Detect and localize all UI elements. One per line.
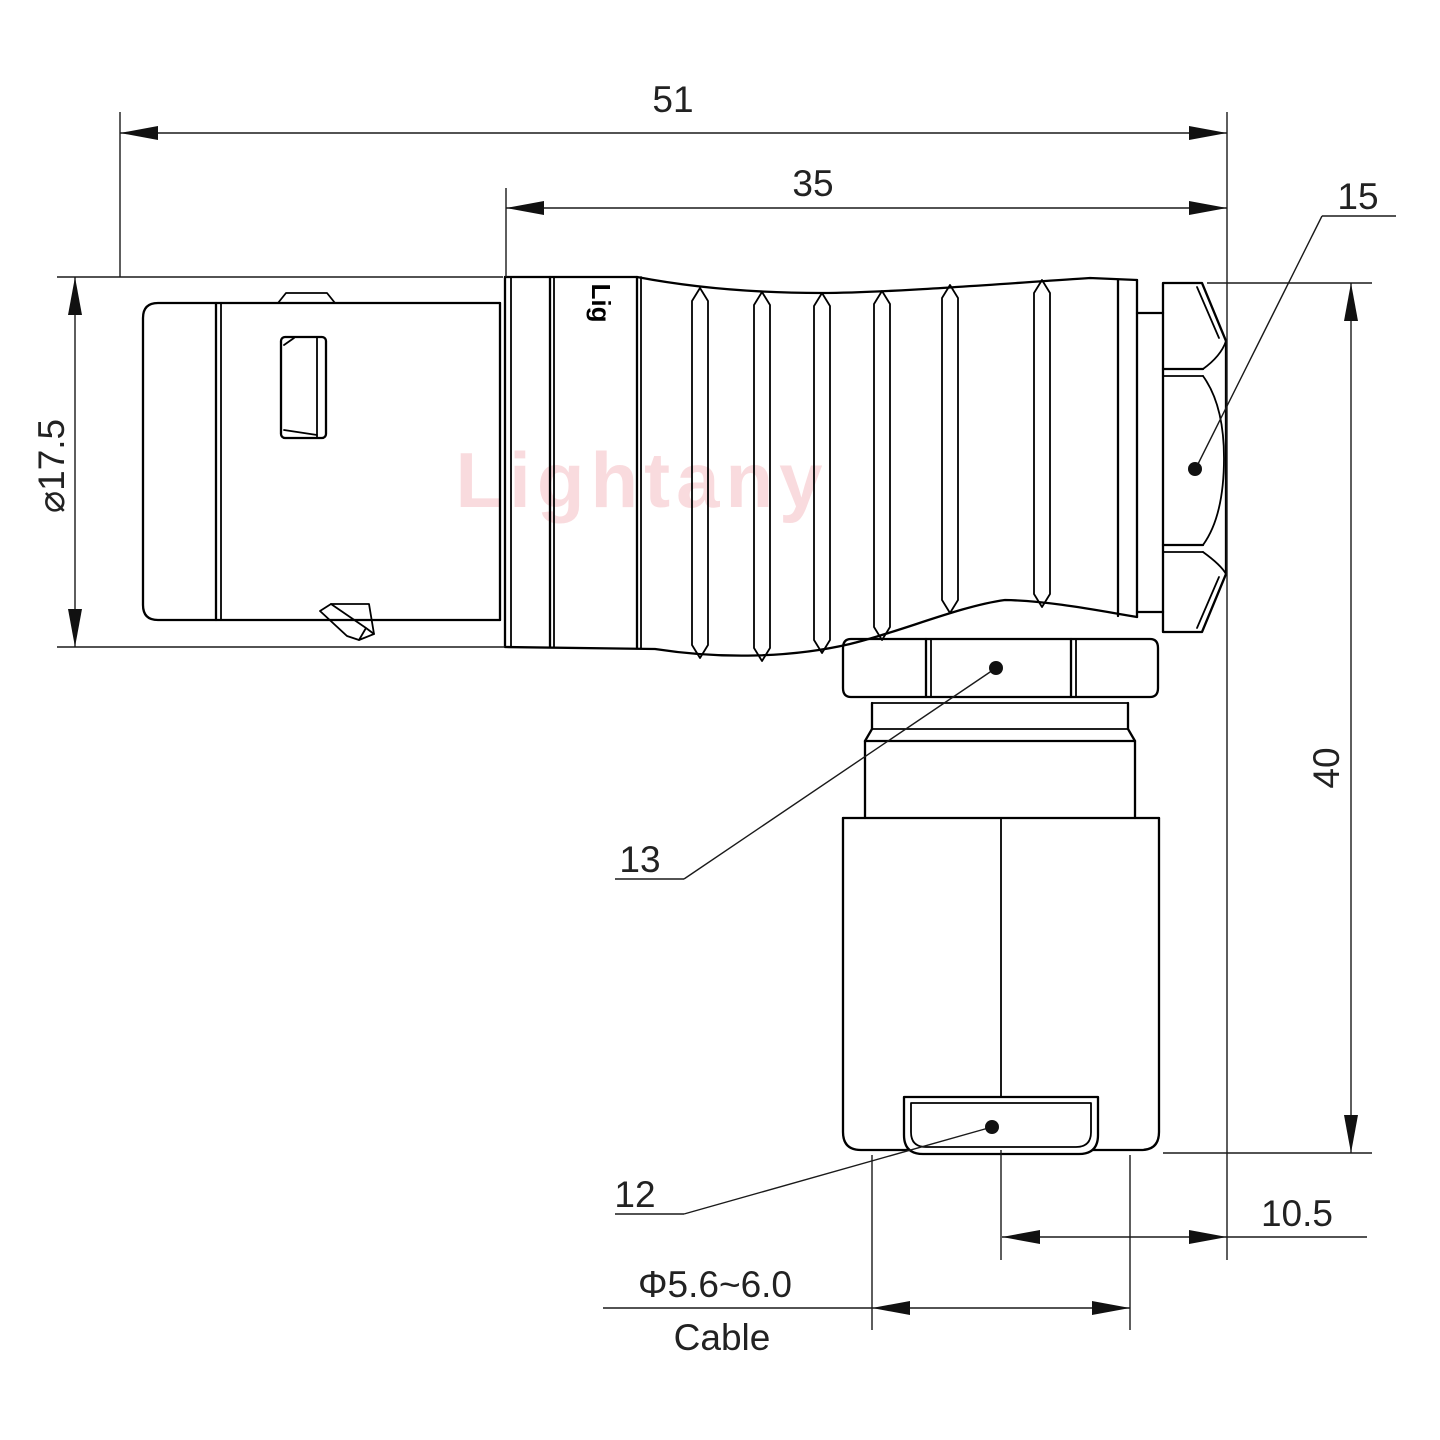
dim-cable-dia-text: Φ5.6~6.0 <box>638 1264 792 1305</box>
latch-window <box>281 337 326 438</box>
hex-nut <box>1137 283 1226 632</box>
dimension-overall-length: 51 <box>120 79 1227 1260</box>
drawing-canvas: Lightany Lig <box>0 0 1440 1440</box>
dim-51-text: 51 <box>652 79 693 120</box>
callout-15-dot <box>1188 462 1202 476</box>
plug-shell <box>143 293 500 640</box>
dim-35-text: 35 <box>792 163 833 204</box>
cable-caption-text: Cable <box>674 1317 771 1358</box>
dimension-offset: 10.5 <box>1001 1150 1367 1260</box>
dimension-height: 40 <box>1163 283 1372 1153</box>
elbow-body <box>843 639 1159 1154</box>
callout-13: 13 <box>615 661 1003 880</box>
cable-bushing <box>904 1097 1098 1154</box>
callout-15-text: 15 <box>1337 176 1378 217</box>
brand-mark-text: Lig <box>586 284 616 323</box>
latch-wedge <box>320 604 374 640</box>
key-notch <box>278 293 335 303</box>
dimension-shell-diameter: ⌀17.5 <box>31 277 505 647</box>
dim-17-5-text: ⌀17.5 <box>31 419 72 513</box>
callout-13-dot <box>989 661 1003 675</box>
callout-12-dot <box>985 1120 999 1134</box>
technical-drawing: Lightany Lig <box>0 0 1440 1440</box>
dimension-body-length: 35 <box>506 163 1227 277</box>
dimension-cable: Φ5.6~6.0 Cable <box>603 1155 1130 1358</box>
callout-12-text: 12 <box>614 1174 655 1215</box>
dim-10-5-text: 10.5 <box>1261 1193 1333 1234</box>
dim-40-text: 40 <box>1306 747 1347 788</box>
callout-13-text: 13 <box>619 839 660 880</box>
